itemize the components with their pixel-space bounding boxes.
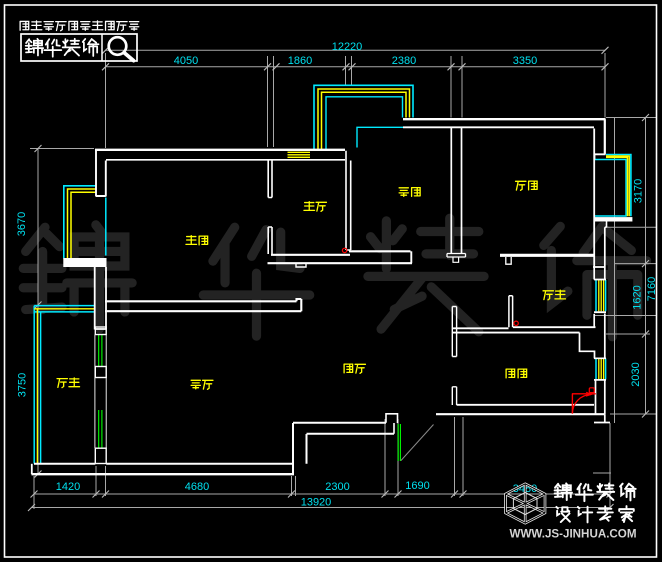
svg-text:4680: 4680 [185,481,209,493]
svg-text:1690: 1690 [405,480,429,492]
svg-text:2380: 2380 [392,55,416,67]
svg-text:1620: 1620 [632,285,644,309]
svg-text:3170: 3170 [633,179,645,203]
svg-text:3670: 3670 [16,212,28,236]
svg-text:3350: 3350 [513,55,537,67]
svg-text:13920: 13920 [301,497,332,509]
svg-text:4050: 4050 [174,55,198,67]
svg-text:WWW.JS-JINHUA.COM: WWW.JS-JINHUA.COM [510,529,637,541]
svg-text:1860: 1860 [288,55,312,67]
svg-text:1420: 1420 [56,481,80,493]
svg-text:2300: 2300 [325,481,349,493]
svg-text:12220: 12220 [332,41,363,53]
svg-text:2030: 2030 [630,362,642,386]
svg-text:3750: 3750 [17,373,29,397]
